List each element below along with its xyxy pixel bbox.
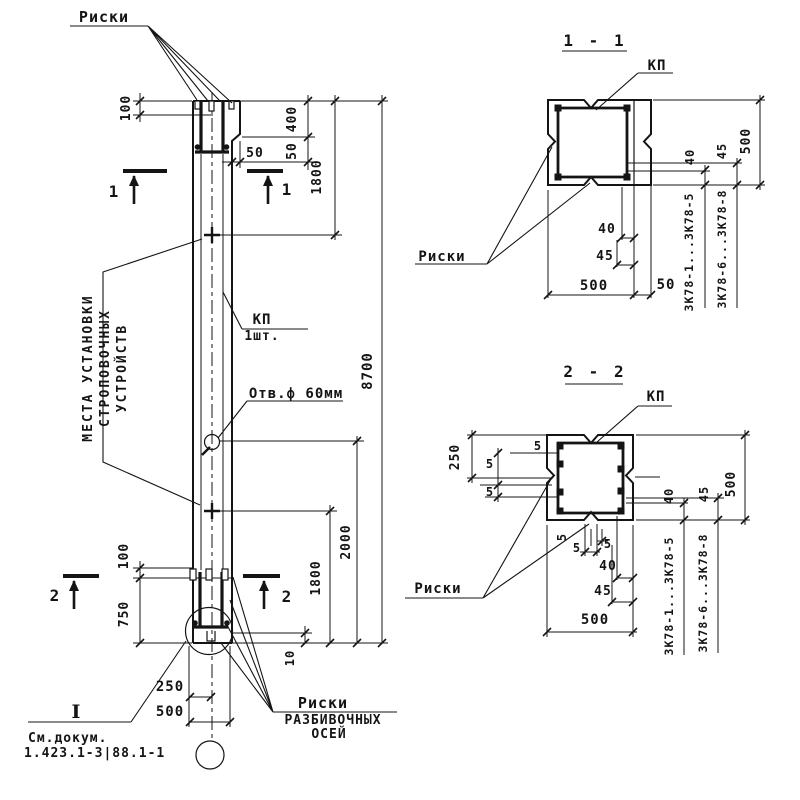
dim-2000: 2000 <box>339 524 354 559</box>
kp-qty-label: 1шт. <box>244 329 279 344</box>
s11-dim-50-bottom: 50 <box>657 277 676 293</box>
s22-dim-45-right: 45 <box>697 486 711 502</box>
cut-2-right-arrow <box>259 580 269 591</box>
cut-2-left-digit: 2 <box>50 586 63 605</box>
s11-dim-40-bottom: 40 <box>598 222 616 237</box>
s22-series-2: 3К78-6...3К78-8 <box>696 534 710 653</box>
s11-title: 1 - 1 <box>563 31 626 50</box>
s22-dim-5a: 5 <box>534 439 542 453</box>
section-2-2 <box>547 435 633 520</box>
section-1-1 <box>548 100 651 185</box>
rebar <box>618 466 625 473</box>
riski-top-leaders <box>70 26 232 103</box>
dim-1800-bottom: 1800 <box>309 560 324 595</box>
roman-one-label: I <box>72 701 81 723</box>
dim-100-bottom: 100 <box>117 543 132 569</box>
s22-rebar-cage <box>558 443 623 513</box>
rebar <box>557 489 564 496</box>
sling-point-cross-lower <box>204 503 220 519</box>
dim-50-vert: 50 <box>285 142 300 160</box>
s11-outline <box>548 100 651 185</box>
rebar <box>557 508 564 515</box>
cut-1-left-arrow <box>129 175 139 186</box>
cut-1-right-arrow <box>263 175 273 186</box>
s22-dim-500-bottom: 500 <box>581 612 609 628</box>
s22-dim-5d: 5 <box>555 533 569 541</box>
cut-2-left-arrow <box>69 580 79 591</box>
rebar <box>618 508 625 515</box>
riska-mark <box>190 569 196 580</box>
dim-500: 500 <box>156 704 184 720</box>
dim-50-horiz: 50 <box>246 146 264 161</box>
cut-1-left-digit: 1 <box>109 182 122 201</box>
see-doc-label-1: См.докум. <box>28 731 107 746</box>
see-doc-label-2: 1.423.1-3|88.1-1 <box>24 746 165 761</box>
s22-series-1: 3К78-1...3К78-5 <box>662 537 676 656</box>
s22-dim-5c: 5 <box>486 485 494 499</box>
riska-mark <box>222 569 228 580</box>
s11-dim-45-bottom: 45 <box>596 249 614 264</box>
rebar <box>555 174 562 181</box>
dim-750: 750 <box>117 601 132 627</box>
s22-dim-500-right: 500 <box>724 471 739 497</box>
axes-riski-label-1: Риски <box>298 694 348 712</box>
kp-label: КП <box>253 312 272 328</box>
column-drawing: Риски МЕСТА УСТАНОВКИ СТРОПОВОЧНЫХ УСТРО… <box>0 0 800 800</box>
s11-series-1: 3К78-1...3К78-5 <box>682 193 696 312</box>
top-embed-stud-right <box>224 144 230 150</box>
s22-dim-40-right: 40 <box>662 488 676 504</box>
top-embed-stud-left <box>195 144 201 150</box>
riski-top-label: Риски <box>79 8 129 26</box>
s11-dim-500-bottom: 500 <box>580 278 608 294</box>
bottom-embed-stud-left <box>192 620 198 626</box>
axes-riski-label-3: ОСЕЙ <box>311 726 346 742</box>
rebar <box>624 174 631 181</box>
elevation-view <box>186 92 241 769</box>
rebar <box>555 105 562 112</box>
s11-dim-40-right: 40 <box>683 149 697 165</box>
cut-2-right-digit: 2 <box>282 587 295 606</box>
column-outline <box>193 101 240 643</box>
sling-point-cross-upper <box>204 227 220 243</box>
s22-dim-5b: 5 <box>486 457 494 471</box>
hole-riska-tick <box>202 447 210 455</box>
dim-8700: 8700 <box>360 352 376 390</box>
s22-riski-label: Риски <box>414 581 461 597</box>
s22-dim-5e: 5 <box>573 541 581 555</box>
rebar <box>557 461 564 468</box>
drawing-canvas: Риски МЕСТА УСТАНОВКИ СТРОПОВОЧНЫХ УСТРО… <box>0 0 800 800</box>
rebar <box>618 443 625 450</box>
elevation-texts: Риски МЕСТА УСТАНОВКИ СТРОПОВОЧНЫХ УСТРО… <box>24 8 382 761</box>
s22-dim-250: 250 <box>448 444 463 470</box>
dim-250: 250 <box>156 679 184 695</box>
lifting-places-label-3: УСТРОЙСТВ <box>114 324 130 412</box>
rebar <box>624 105 631 112</box>
hole-label: Отв.ф 60мм <box>249 386 343 402</box>
rebar <box>618 488 625 495</box>
riska-mark <box>195 101 200 109</box>
axes-riski-label-2: РАЗБИВОЧНЫХ <box>284 713 381 728</box>
lifting-places-label-1: МЕСТА УСТАНОВКИ <box>81 294 96 441</box>
elevation-dim-lines <box>133 93 388 727</box>
axes-riski-leaders <box>221 577 397 712</box>
cut-1-right-digit: 1 <box>282 180 295 199</box>
dim-400: 400 <box>285 106 300 132</box>
s22-kp-label: КП <box>647 389 666 405</box>
lifting-places-label-2: СТРОПОВОЧНЫХ <box>98 309 113 427</box>
s11-riski-label: Риски <box>418 249 465 265</box>
axis-bubble <box>196 741 224 769</box>
riska-mark <box>206 569 212 580</box>
s22-dim-45-bottom: 45 <box>594 584 612 599</box>
s11-dim-500-right: 500 <box>739 128 754 154</box>
s11-riski-leaders <box>415 147 590 264</box>
s11-kp-label: КП <box>648 58 667 74</box>
dim-10: 10 <box>283 650 297 666</box>
s11-series-2: 3К78-6...3К78-8 <box>715 190 729 309</box>
s11-dim-45-right: 45 <box>715 143 729 159</box>
s22-dim-5f: 5 <box>604 537 612 551</box>
dim-100-top: 100 <box>119 95 134 121</box>
rebar <box>557 443 564 450</box>
section-2-2-texts: 2 - 2 КП Риски 250 5 5 5 5 5 5 40 45 500… <box>414 362 739 655</box>
bottom-anchor-loop <box>207 631 215 641</box>
s11-rebar-cage <box>558 108 627 177</box>
dim-1800-top: 1800 <box>310 159 325 194</box>
s22-title: 2 - 2 <box>563 362 626 381</box>
s22-dim-40-bottom: 40 <box>599 559 617 574</box>
hole-leader <box>218 401 343 438</box>
riska-mark <box>209 101 214 111</box>
s22-kp-leader <box>597 406 672 442</box>
